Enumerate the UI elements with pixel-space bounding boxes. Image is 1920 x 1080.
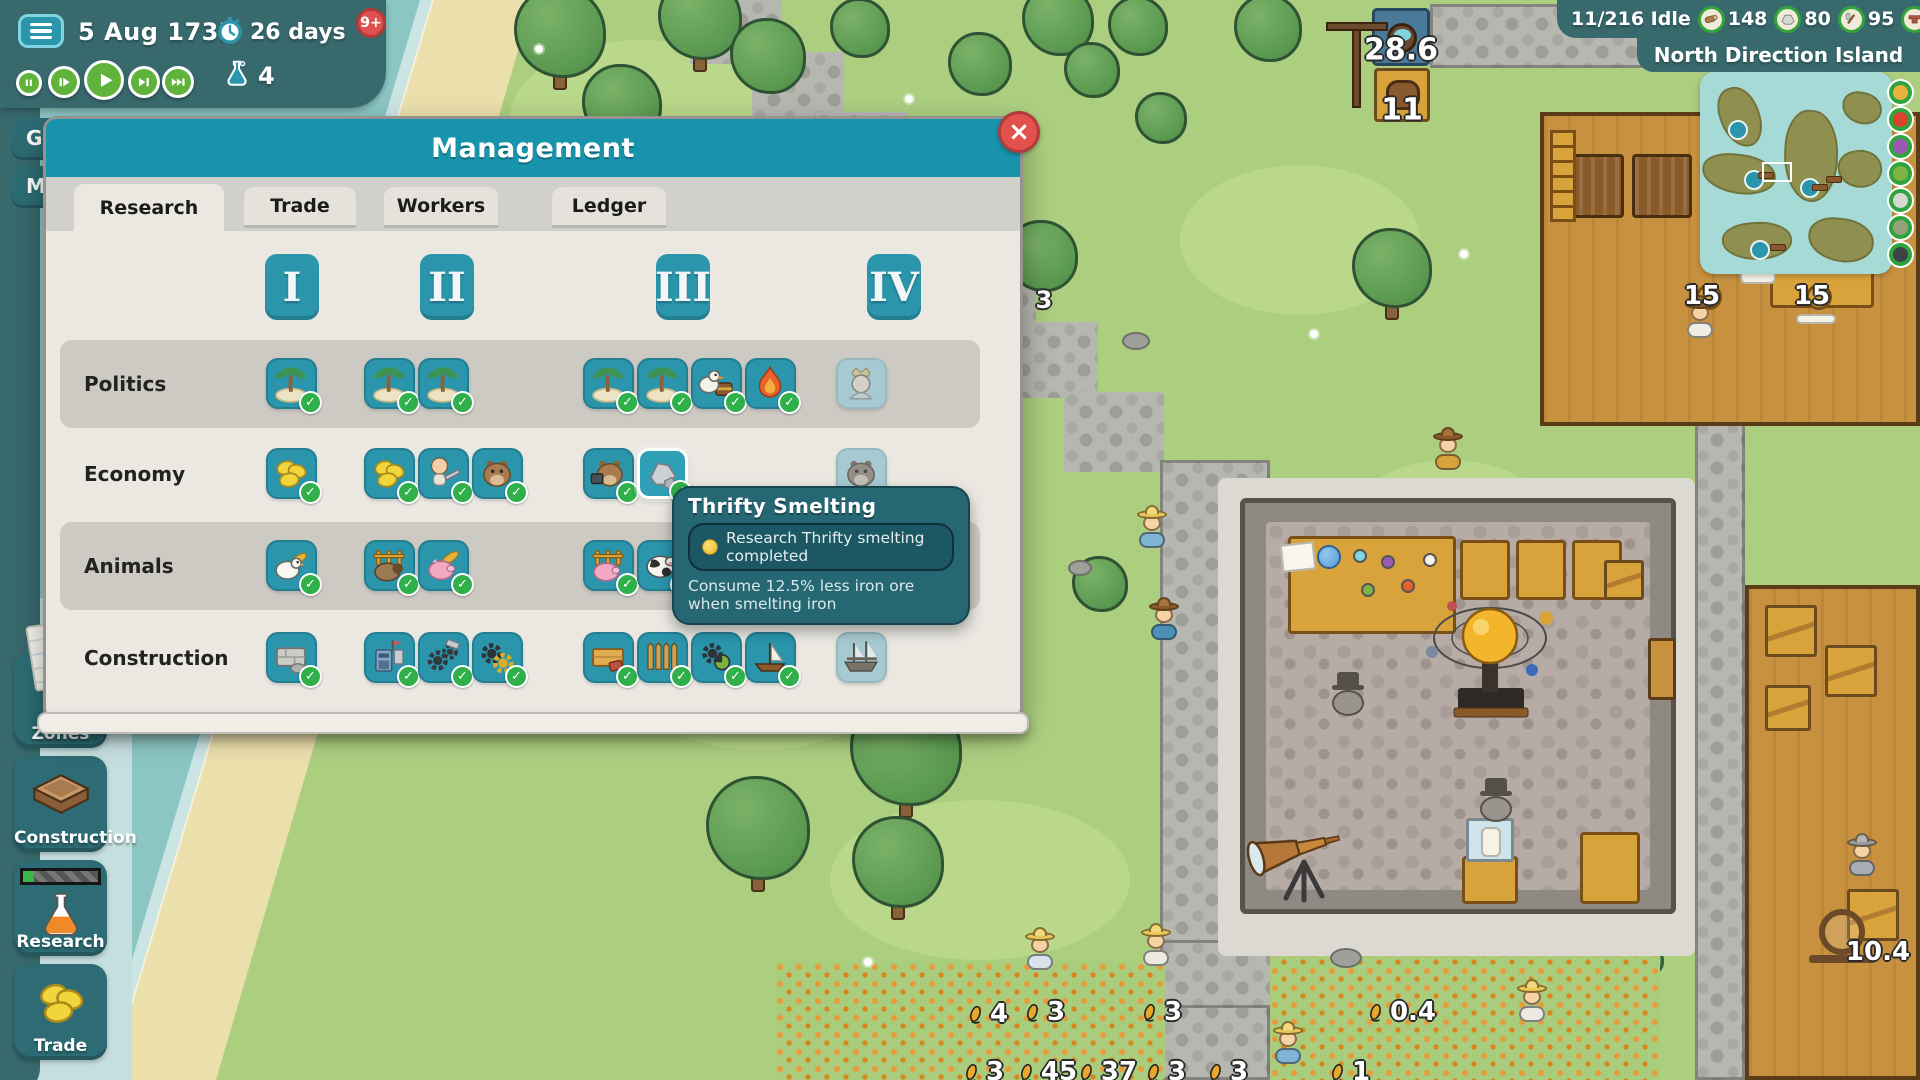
- menu-icon[interactable]: [18, 14, 64, 48]
- tree: [852, 816, 944, 908]
- resource-value: 80: [1804, 8, 1830, 30]
- map-prop: [1280, 541, 1317, 572]
- minimap-island: [1711, 81, 1768, 152]
- corn-icon[interactable]: [1887, 79, 1914, 106]
- villager: [1433, 430, 1463, 470]
- research-complete-badge: ✓: [670, 665, 693, 688]
- research-tile-duck-chest[interactable]: ✓: [691, 358, 742, 409]
- research-tile-palm-island[interactable]: ✓: [266, 358, 317, 409]
- villager: [1025, 930, 1055, 970]
- spinning-wheel-stand: [1809, 955, 1875, 963]
- flower: [905, 95, 913, 103]
- flower: [535, 45, 543, 53]
- toolbar-label: Trade: [14, 1036, 107, 1056]
- minimap-island: [1840, 89, 1885, 127]
- timer-countdown: 26 days: [250, 20, 346, 45]
- research-complete-badge: ✓: [616, 573, 639, 596]
- research-complete-badge: ✓: [397, 391, 420, 414]
- villager-body: [1849, 860, 1875, 876]
- research-complete-badge: ✓: [670, 391, 693, 414]
- resource-value: 148: [1728, 8, 1768, 30]
- flask-count: 4: [258, 62, 275, 90]
- research-tile-coins[interactable]: ✓: [364, 448, 415, 499]
- top-hat-brim: [1480, 791, 1512, 796]
- cabbage-icon[interactable]: [1887, 160, 1914, 187]
- tier-header-I: I: [265, 254, 319, 320]
- management-tabs: ResearchTradeWorkersLedger: [46, 177, 1020, 231]
- lightbulb-icon: [702, 539, 718, 555]
- spinning-wheel: [1819, 909, 1865, 955]
- ladder: [1550, 130, 1576, 222]
- tree: [1064, 42, 1120, 98]
- research-tile-gears-green[interactable]: ✓: [691, 632, 742, 683]
- stone-icon[interactable]: [1887, 187, 1914, 214]
- research-tile-ship[interactable]: [836, 632, 887, 683]
- research-complete-badge: ✓: [505, 665, 528, 688]
- rock-icon-fill: [1893, 220, 1908, 235]
- flower: [1460, 250, 1468, 258]
- resource-counters: 148809559: [1698, 6, 1920, 33]
- grapes-icon[interactable]: [1887, 133, 1914, 160]
- stone-icon-fill: [1893, 193, 1908, 208]
- tooltip-description: Consume 12.5% less iron ore when smeltin…: [688, 577, 954, 613]
- research-tile-bonfire[interactable]: ✓: [745, 358, 796, 409]
- top-hat-brim: [1332, 685, 1364, 690]
- tooltip-status-pill: Research Thrifty smelting completed: [688, 523, 954, 571]
- bricks-icon: [1901, 6, 1920, 33]
- villager: [1141, 926, 1171, 966]
- villager-body: [1151, 624, 1177, 640]
- resource-counter-stone[interactable]: 80: [1774, 6, 1830, 33]
- play-fast-icon: [134, 72, 154, 92]
- crate: [1765, 605, 1817, 657]
- play-fastest-button[interactable]: [162, 66, 194, 98]
- scientist-body: [1480, 796, 1512, 822]
- research-complete-badge: ✓: [451, 391, 474, 414]
- research-tile-palm-island[interactable]: ✓: [364, 358, 415, 409]
- play-fastest-icon: [168, 72, 188, 92]
- research-progress-fill: [23, 871, 34, 882]
- flower: [1310, 330, 1318, 338]
- apple-icon-fill: [1893, 112, 1908, 127]
- wood-icon: [1698, 6, 1725, 33]
- tooltip-status: Research Thrifty smelting completed: [726, 529, 940, 565]
- research-complete-badge: ✓: [616, 665, 639, 688]
- villager: [1137, 508, 1167, 548]
- research-tooltip: Thrifty Smelting Research Thrifty smelti…: [672, 486, 970, 625]
- villager-body: [1519, 1006, 1545, 1022]
- tree: [1135, 92, 1187, 144]
- pause-button[interactable]: [16, 70, 42, 96]
- minimap-ship-icon: [1770, 244, 1786, 251]
- villager: [1517, 982, 1547, 1022]
- play-button[interactable]: [84, 60, 124, 100]
- resource-value: 95: [1868, 8, 1894, 30]
- log-storage: [1374, 68, 1430, 122]
- idle-workers-label[interactable]: 11/216 Idle: [1571, 8, 1691, 30]
- management-window: Management × ResearchTradeWorkersLedger …: [43, 116, 1023, 722]
- telescope: [1246, 800, 1376, 904]
- flask-prop: [1381, 555, 1395, 569]
- display-case-base: [1462, 856, 1518, 904]
- orrery-model: [1418, 576, 1568, 726]
- research-tile-gears[interactable]: ✓: [472, 632, 523, 683]
- villager-body: [1435, 454, 1461, 470]
- stone-icon: [1774, 6, 1801, 33]
- research-complete-badge: ✓: [616, 391, 639, 414]
- research-complete-badge: ✓: [451, 665, 474, 688]
- globe-prop: [1317, 545, 1341, 569]
- villager: [1273, 1024, 1303, 1064]
- tab-trade[interactable]: Trade: [244, 187, 356, 225]
- toolbar-label: Construction: [14, 828, 107, 848]
- research-tile-pig-wheat[interactable]: ✓: [418, 540, 469, 591]
- wheat-field: [775, 962, 1165, 1080]
- minimap-ship-icon: [1812, 184, 1828, 191]
- villager: [1847, 836, 1877, 876]
- research-complete-badge: ✓: [299, 391, 322, 414]
- flask-prop: [1423, 553, 1437, 567]
- research-category-label: Economy: [84, 430, 185, 518]
- skeleton-specimen: [1481, 827, 1501, 857]
- research-tile-queen[interactable]: [836, 358, 887, 409]
- research-complete-badge: ✓: [397, 573, 420, 596]
- research-tile-sailboat[interactable]: ✓: [745, 632, 796, 683]
- island-name-bar: North Direction Island: [1637, 38, 1920, 72]
- minimap[interactable]: [1700, 72, 1892, 274]
- close-icon[interactable]: ×: [998, 111, 1040, 153]
- research-tile-plank-wall[interactable]: ✓: [583, 632, 634, 683]
- play-slow-icon: [54, 72, 74, 92]
- storage-building: [1745, 585, 1920, 1080]
- flask-prop: [1401, 579, 1415, 593]
- villager-hat-top: [1855, 833, 1869, 842]
- minimap-port-icon: [1750, 240, 1770, 260]
- tier-header-III: III: [656, 254, 710, 320]
- island-name: North Direction Island: [1654, 43, 1903, 67]
- foundation-icon: [29, 762, 93, 826]
- research-complete-badge: ✓: [616, 481, 639, 504]
- research-tile-sheep-pen[interactable]: ✓: [364, 540, 415, 591]
- resource-counter-bricks[interactable]: 59: [1901, 6, 1920, 33]
- observatory-door: [1648, 638, 1676, 700]
- tree: [514, 0, 606, 78]
- minimap-viewport[interactable]: [1762, 162, 1792, 182]
- villager-body: [1143, 950, 1169, 966]
- research-tile-palm-island[interactable]: ✓: [418, 358, 469, 409]
- research-tile-coins[interactable]: ✓: [266, 448, 317, 499]
- research-category-label: Politics: [84, 340, 166, 428]
- research-tile-palm-island[interactable]: ✓: [583, 358, 634, 409]
- side-table: [1580, 832, 1640, 904]
- tab-research[interactable]: Research: [74, 184, 224, 231]
- top-right-resource-bar: 11/216 Idle 148809559: [1557, 0, 1920, 38]
- display-case-glass: [1466, 818, 1514, 862]
- crate: [1825, 645, 1877, 697]
- resource-counter-wood[interactable]: 148: [1698, 6, 1768, 33]
- game-date: 5 Aug 1733: [78, 18, 236, 46]
- play-fast-button[interactable]: [128, 66, 160, 98]
- tree: [1352, 228, 1432, 308]
- villager-hat-top: [1149, 923, 1163, 932]
- research-complete-badge: ✓: [397, 665, 420, 688]
- villager-hat-top: [1693, 295, 1707, 304]
- villager-body: [1275, 1048, 1301, 1064]
- villager-hat-top: [1033, 927, 1047, 936]
- queen-icon: [840, 362, 882, 404]
- bone-prop: [1796, 314, 1836, 324]
- tier-header-IV: IV: [867, 254, 921, 320]
- scientist-body: [1332, 690, 1364, 716]
- tree: [706, 776, 810, 880]
- villager-hat-top: [1441, 427, 1455, 436]
- game-screen: 28.6112315154330.43453733110.4 GMa Zones…: [0, 0, 1920, 1080]
- toolbar-label: Research: [14, 932, 107, 952]
- toolbar-construction-button[interactable]: Construction: [14, 756, 107, 852]
- wood-frame-post: [1352, 26, 1361, 108]
- research-progress-bar: [20, 868, 101, 885]
- tab-workers[interactable]: Workers: [384, 187, 498, 225]
- research-complete-badge: ✓: [299, 573, 322, 596]
- tooltip-title: Thrifty Smelting: [688, 494, 954, 518]
- research-complete-badge: ✓: [397, 481, 420, 504]
- top-hat: [1485, 778, 1507, 792]
- resource-counter-axe[interactable]: 95: [1838, 6, 1894, 33]
- research-tile-beaver-tool[interactable]: ✓: [583, 448, 634, 499]
- coins-icon: [31, 972, 91, 1032]
- research-tile-workshop[interactable]: ✓: [364, 632, 415, 683]
- flower: [864, 958, 872, 966]
- pause-icon: [21, 75, 37, 91]
- grapes-icon-fill: [1893, 139, 1908, 154]
- research-tile-chicken[interactable]: ✓: [266, 540, 317, 591]
- toolbar-trade-button[interactable]: Trade: [14, 964, 107, 1060]
- crate: [1765, 685, 1811, 731]
- research-tile-gears-hammer[interactable]: ✓: [418, 632, 469, 683]
- villager-hat-top: [1281, 1021, 1295, 1030]
- toolbar-research-button[interactable]: Research: [14, 860, 107, 956]
- villager-hat-top: [1145, 505, 1159, 514]
- rock: [1122, 332, 1150, 350]
- flask-prop: [1361, 583, 1375, 597]
- top-hat: [1337, 672, 1359, 686]
- research-tile-beaver[interactable]: ✓: [472, 448, 523, 499]
- research-complete-badge: ✓: [451, 573, 474, 596]
- water-well: [1372, 8, 1430, 66]
- minimap-ship-icon: [1826, 176, 1842, 183]
- tree: [948, 32, 1012, 96]
- research-flask-icon: [222, 58, 252, 88]
- research-complete-badge: ✓: [778, 665, 801, 688]
- play-icon: [91, 67, 118, 94]
- management-window-header: Management: [46, 119, 1020, 177]
- rock: [1330, 948, 1362, 968]
- rock-icon[interactable]: [1887, 214, 1914, 241]
- villager: [1685, 298, 1715, 338]
- villager-body: [1687, 322, 1713, 338]
- bench: [1632, 154, 1692, 218]
- research-tile-palm-island[interactable]: ✓: [637, 358, 688, 409]
- axe-icon: [1838, 6, 1865, 33]
- minimap-port-icon: [1728, 120, 1748, 140]
- research-complete-badge: ✓: [778, 391, 801, 414]
- research-complete-badge: ✓: [299, 665, 322, 688]
- window-title: Management: [431, 133, 635, 164]
- villager: [1149, 600, 1179, 640]
- corn-icon-fill: [1893, 85, 1908, 100]
- apple-icon[interactable]: [1887, 106, 1914, 133]
- villager-hat-top: [1157, 597, 1171, 606]
- villager-hat-top: [1525, 979, 1539, 988]
- research-category-label: Construction: [84, 614, 228, 702]
- stone-path: [1064, 392, 1164, 472]
- research-tile-pig-pen[interactable]: ✓: [583, 540, 634, 591]
- log: [1386, 80, 1420, 110]
- research-complete-badge: ✓: [724, 391, 747, 414]
- research-tile-palisade[interactable]: ✓: [637, 632, 688, 683]
- tab-ledger[interactable]: Ledger: [552, 187, 666, 225]
- villager-body: [1139, 532, 1165, 548]
- top-left-hud: 5 Aug 1733 26 days 4: [0, 0, 386, 108]
- scientist-villager: [1478, 778, 1514, 822]
- research-category-label: Animals: [84, 522, 174, 610]
- play-slow-button[interactable]: [48, 66, 80, 98]
- wood-frame-beam: [1326, 22, 1388, 31]
- research-tile-sawyer[interactable]: ✓: [418, 448, 469, 499]
- stool: [1806, 284, 1832, 310]
- timer-icon: [214, 14, 246, 46]
- villager-body: [1027, 954, 1053, 970]
- minimap-island: [1836, 147, 1885, 191]
- stone-path: [1695, 420, 1745, 1080]
- tree: [1108, 0, 1168, 56]
- tier-header-II: II: [420, 254, 474, 320]
- research-complete-badge: ✓: [299, 481, 322, 504]
- tree: [730, 18, 806, 94]
- notification-badge[interactable]: 9+: [356, 8, 386, 38]
- tree: [1234, 0, 1302, 62]
- coal-icon-fill: [1893, 247, 1908, 262]
- flask-prop: [1353, 549, 1367, 563]
- crate: [1604, 560, 1644, 600]
- well-water: [1394, 29, 1411, 41]
- research-tile-stone-wall[interactable]: ✓: [266, 632, 317, 683]
- cabbage-icon-fill: [1893, 166, 1908, 181]
- research-complete-badge: ✓: [451, 481, 474, 504]
- rock: [1068, 560, 1092, 576]
- minimap-island: [1806, 215, 1876, 266]
- scientist-villager: [1330, 672, 1366, 716]
- coal-icon[interactable]: [1887, 241, 1914, 268]
- research-complete-badge: ✓: [505, 481, 528, 504]
- tree: [830, 0, 890, 58]
- research-complete-badge: ✓: [724, 665, 747, 688]
- research-tree: IIIIIIIVPolitics✓✓✓✓✓✓✓Economy✓✓✓✓✓✓Anim…: [46, 231, 1026, 725]
- ship-icon: [840, 636, 882, 678]
